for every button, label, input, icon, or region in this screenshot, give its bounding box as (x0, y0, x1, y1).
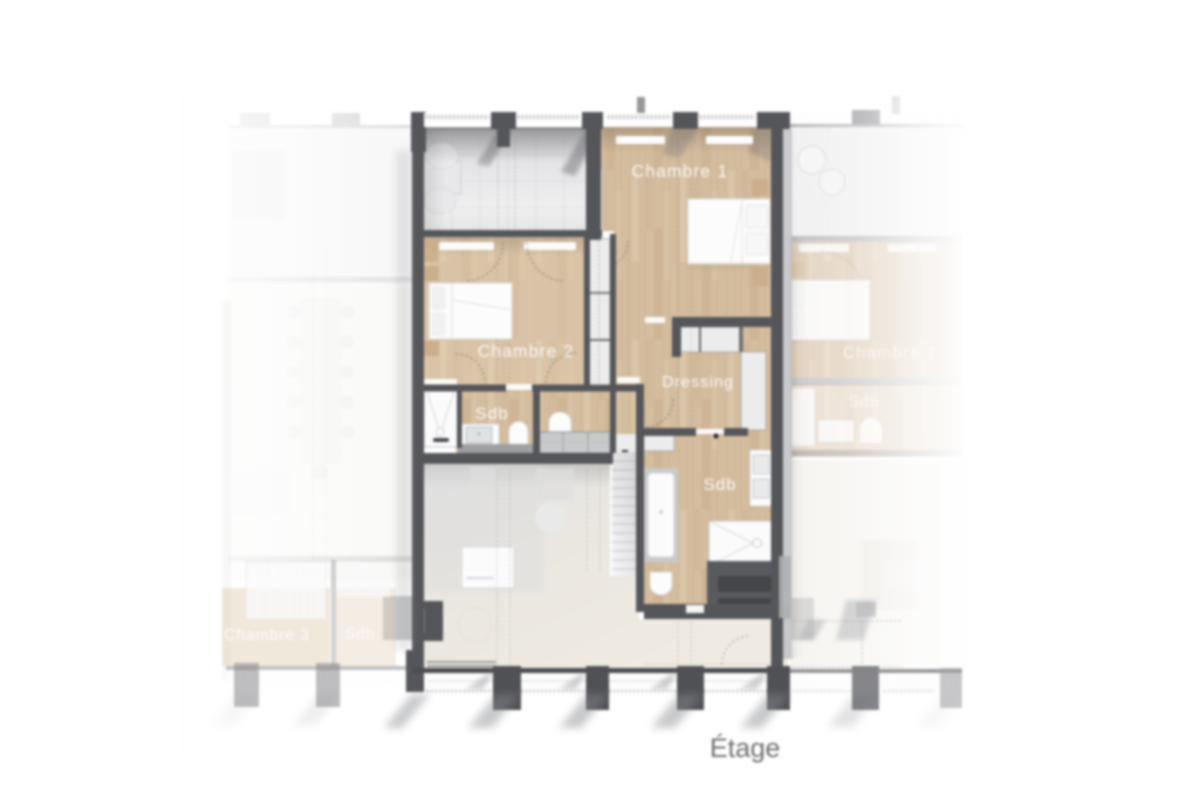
svg-text:Dressing: Dressing (662, 374, 734, 391)
svg-text:Chambre 2: Chambre 2 (843, 344, 937, 362)
svg-text:Sdb: Sdb (848, 394, 879, 411)
svg-text:Chambre 3: Chambre 3 (224, 627, 310, 644)
svg-text:Chambre 2: Chambre 2 (478, 341, 575, 361)
svg-text:Étage: Étage (710, 733, 781, 763)
svg-text:Sdb: Sdb (703, 475, 736, 494)
svg-text:Sdb: Sdb (475, 404, 508, 423)
svg-text:Sdb: Sdb (345, 626, 376, 643)
svg-text:Chambre 1: Chambre 1 (632, 161, 729, 181)
